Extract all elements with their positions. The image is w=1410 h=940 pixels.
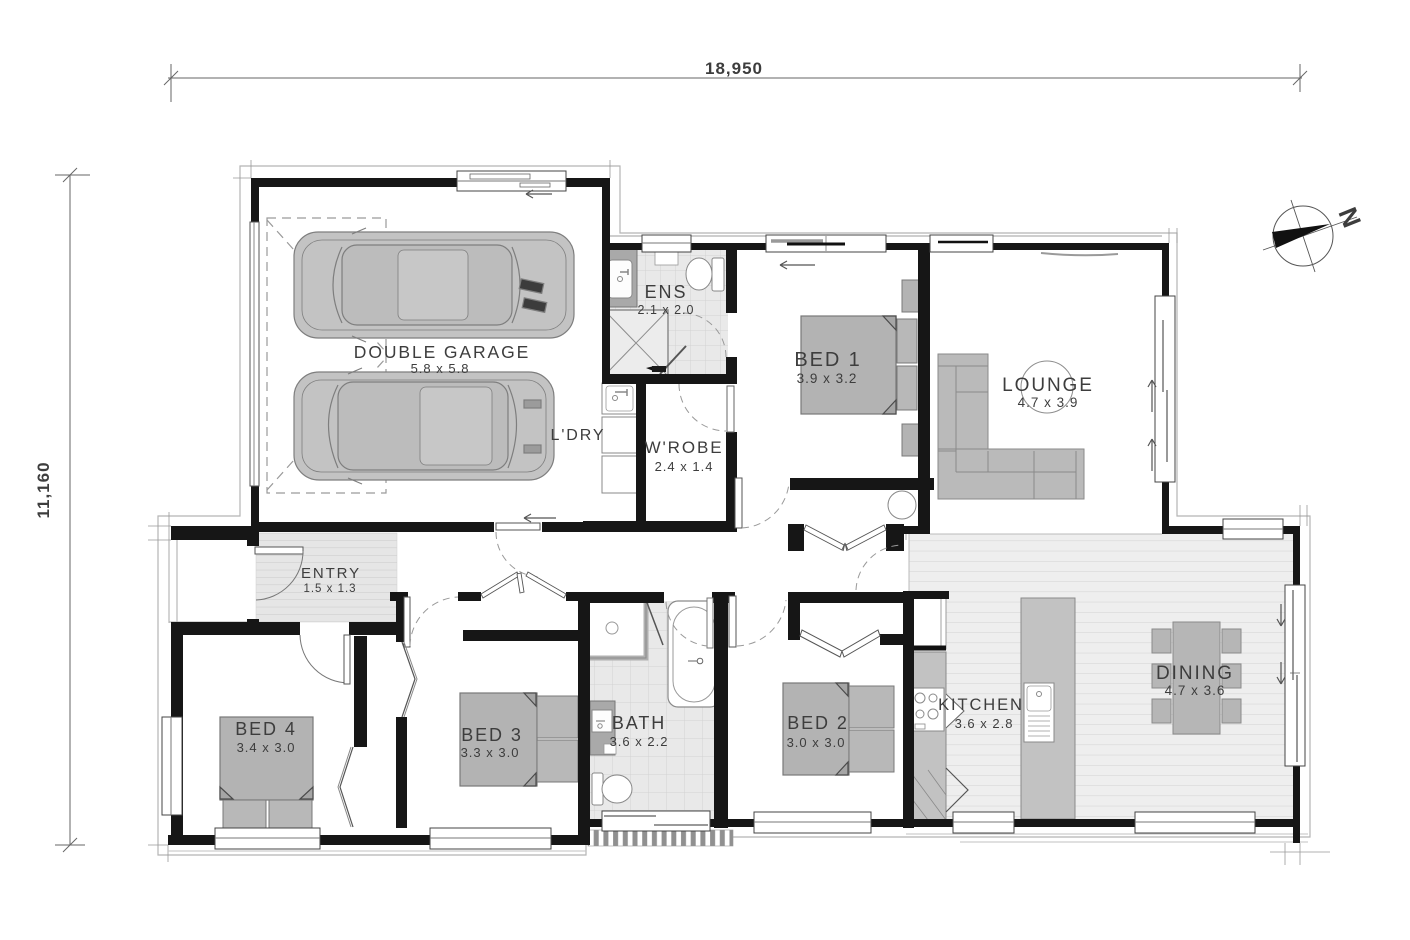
svg-text:LOUNGE: LOUNGE xyxy=(1002,375,1094,396)
svg-text:5.8 x 5.8: 5.8 x 5.8 xyxy=(411,361,470,376)
svg-text:BED 4: BED 4 xyxy=(235,719,297,739)
svg-text:KITCHEN: KITCHEN xyxy=(938,696,1024,714)
svg-text:3.3 x 3.0: 3.3 x 3.0 xyxy=(461,745,520,760)
svg-text:DINING: DINING xyxy=(1156,663,1234,684)
svg-text:DOUBLE GARAGE: DOUBLE GARAGE xyxy=(354,342,530,362)
svg-text:BED 1: BED 1 xyxy=(794,349,861,371)
svg-text:11,160: 11,160 xyxy=(34,461,53,518)
svg-text:4.7 x 3.9: 4.7 x 3.9 xyxy=(1018,395,1079,410)
svg-text:18,950: 18,950 xyxy=(705,59,763,78)
svg-text:3.6 x 2.8: 3.6 x 2.8 xyxy=(955,716,1014,731)
svg-text:BED 2: BED 2 xyxy=(787,713,849,733)
svg-text:W'ROBE: W'ROBE xyxy=(645,438,724,457)
svg-text:BED 3: BED 3 xyxy=(461,725,523,745)
svg-text:ENS: ENS xyxy=(645,282,688,302)
svg-text:3.9 x 3.2: 3.9 x 3.2 xyxy=(797,371,858,386)
svg-text:L'DRY: L'DRY xyxy=(551,427,606,444)
svg-text:3.4 x 3.0: 3.4 x 3.0 xyxy=(237,740,296,755)
svg-text:4.7 x 3.6: 4.7 x 3.6 xyxy=(1165,683,1226,698)
svg-text:BATH: BATH xyxy=(612,713,666,733)
svg-text:2.4 x 1.4: 2.4 x 1.4 xyxy=(655,459,714,474)
svg-text:2.1 x 2.0: 2.1 x 2.0 xyxy=(638,303,695,317)
svg-text:1.5 x 1.3: 1.5 x 1.3 xyxy=(303,583,356,595)
svg-text:3.0 x 3.0: 3.0 x 3.0 xyxy=(787,735,846,750)
svg-text:3.6 x 2.2: 3.6 x 2.2 xyxy=(610,734,669,749)
svg-text:ENTRY: ENTRY xyxy=(301,565,361,582)
